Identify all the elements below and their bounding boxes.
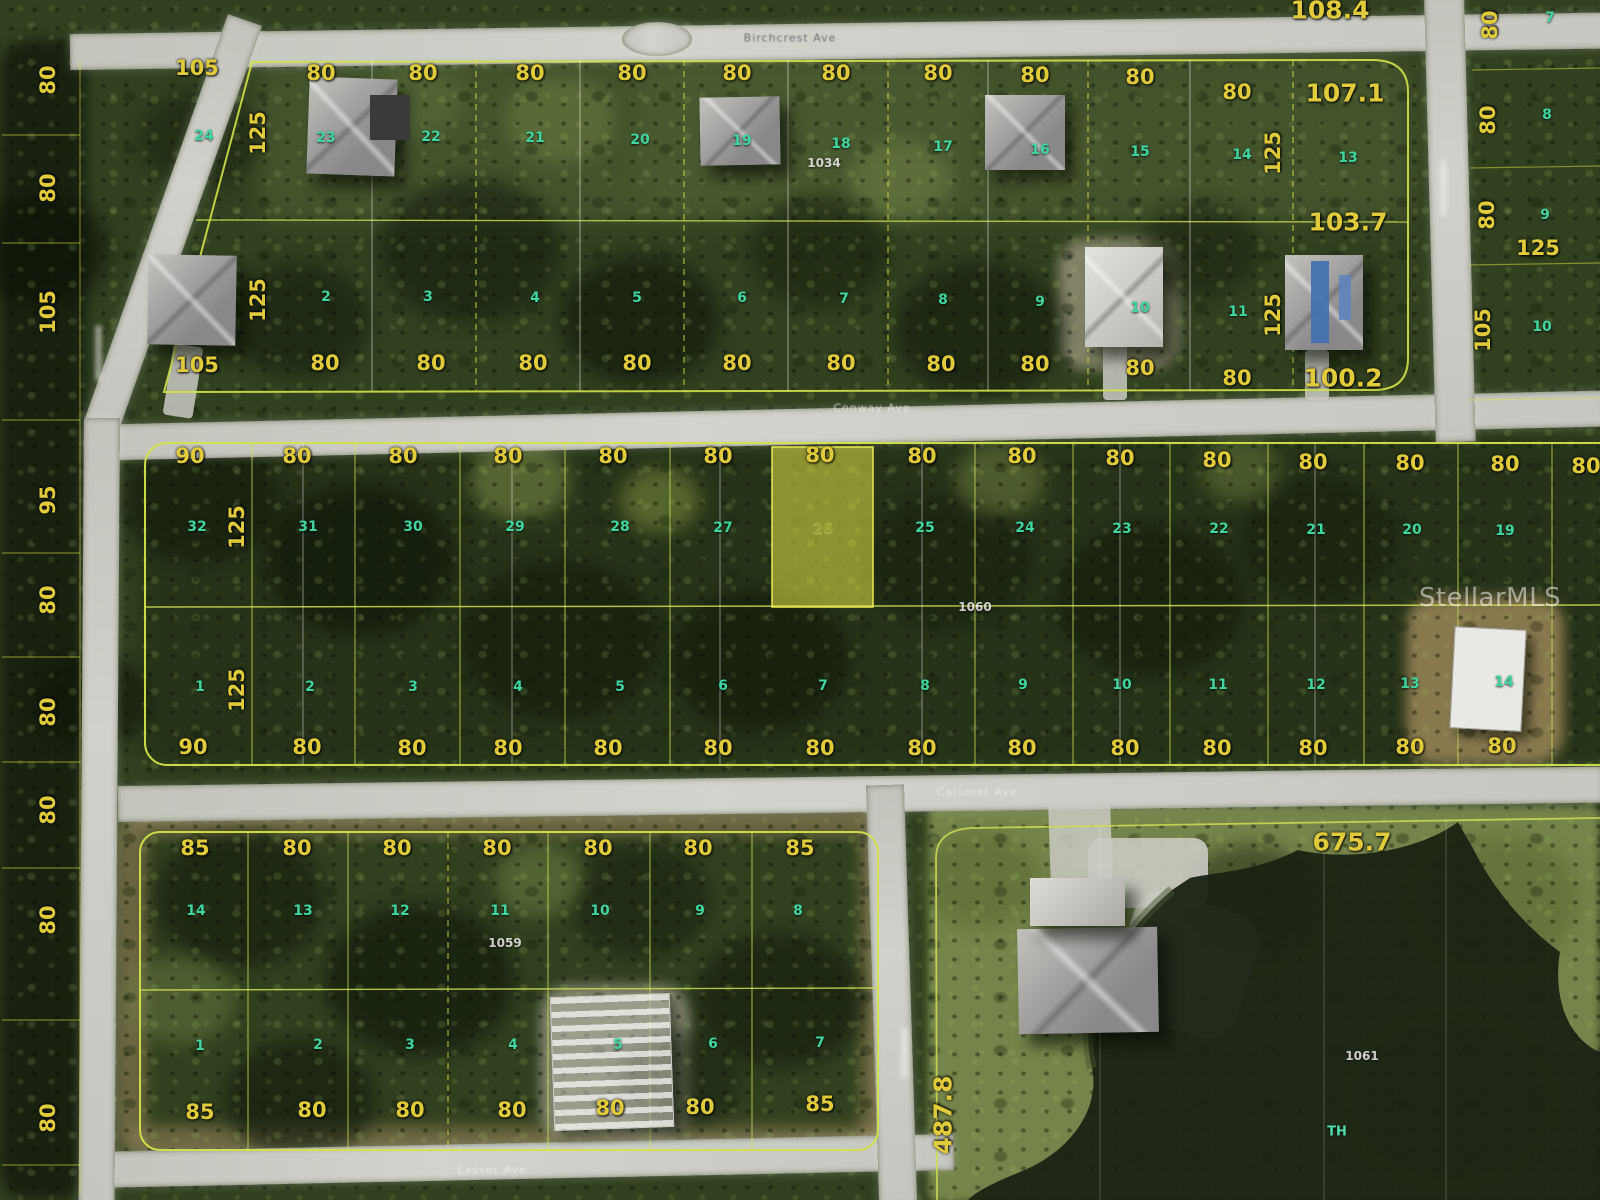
dimension-label: 80 [821,61,850,85]
dimension-label: 80 [583,836,612,860]
dimension-label: 125 [1516,236,1560,260]
lot-number-label: 22 [421,129,440,145]
dimension-label: 80 [598,444,627,468]
lot-number-label: 23 [1112,521,1131,537]
dimension-label: 90 [175,444,204,468]
house-blue-roof [1285,255,1363,350]
dimension-label: 125 [1261,293,1285,337]
lot-number-label: 5 [632,290,642,306]
house-west [147,254,237,346]
lot-number-label: 17 [933,139,952,155]
lot-number-label: 27 [713,520,732,536]
dimension-label: 80 [1395,451,1424,475]
lot-number-label: 16 [1030,142,1049,158]
lot-number-label: 14 [186,903,205,919]
lot-number-label: 10 [590,903,609,919]
dimension-label: 80 [408,61,437,85]
house-north-2 [699,96,780,165]
dimension-label: 80 [36,795,60,824]
lot-number-label: 10 [1130,300,1149,316]
dimension-label: 80 [416,351,445,375]
dimension-label: 80 [703,736,732,760]
dimension-label: 105 [36,290,60,334]
lot-number-label: 13 [1338,150,1357,166]
dimension-label: 80 [1298,736,1327,760]
house-north-3 [985,95,1065,170]
lot-number-label: 19 [732,133,751,149]
lot-number-label: 10 [1532,319,1551,335]
dimension-label: 80 [683,836,712,860]
dimension-label: 80 [36,585,60,614]
dimension-label: 80 [703,444,732,468]
dimension-label: 105 [175,56,219,80]
dimension-label: 125 [246,111,270,155]
blue-roof-panel [1311,261,1329,343]
dimension-label: 105 [175,353,219,377]
dimension-label: 80 [397,736,426,760]
lot-number-label: 32 [187,519,206,535]
dimension-label: 80 [907,736,936,760]
lot-number-label: 15 [1130,144,1149,160]
house-under-construction [1085,247,1163,347]
lot-number-label: 21 [1306,522,1325,538]
lot-number-label: 11 [490,903,509,919]
dimension-label: 80 [310,351,339,375]
dimension-label: 85 [180,836,209,860]
dimension-label: 80 [617,61,646,85]
dimension-label: 80 [1490,452,1519,476]
lot-number-label: 8 [1542,107,1552,123]
dimension-label: 487.8 [929,1075,958,1154]
lot-number-label: 13 [293,903,312,919]
street-name-west-blur [95,325,102,381]
dimension-label: 80 [1476,105,1500,134]
dimension-label: 80 [826,351,855,375]
dimension-label: 80 [923,61,952,85]
lot-number-label: 8 [793,903,803,919]
dimension-label: 80 [382,836,411,860]
dimension-label: 95 [36,485,60,514]
house-north-1-wing [370,95,410,140]
lot-number-label: 12 [1306,677,1325,693]
dimension-label: 80 [1125,356,1154,380]
dimension-label: 80 [595,1096,624,1120]
dimension-label: 80 [493,736,522,760]
dimension-label: 80 [395,1098,424,1122]
dimension-label: 80 [1298,450,1327,474]
dimension-label: 80 [493,444,522,468]
lot-number-label: 11 [1228,304,1247,320]
dimension-label: 80 [1202,448,1231,472]
subject-lot-number-label: 26 [813,519,834,537]
dimension-label: 125 [225,505,249,549]
dimension-label: 80 [1007,736,1036,760]
lot-number-label: 1 [195,679,205,695]
lot-number-label: 31 [298,519,317,535]
lot-number-label: 2 [305,679,315,695]
lot-number-label: 22 [1209,521,1228,537]
lot-number-label: 21 [525,130,544,146]
lot-number-label: 14 [1232,147,1251,163]
lot-number-label: 3 [405,1037,415,1053]
street-name-label: Calumet Ave [937,786,1018,799]
dimension-label: 80 [926,352,955,376]
dimension-label: 80 [622,351,651,375]
dimension-label: 80 [292,735,321,759]
lot-number-label: 8 [938,292,948,308]
lot-number-label: 2 [313,1037,323,1053]
dimension-label: 80 [1020,63,1049,87]
lot-number-label: 5 [613,1037,623,1053]
dimension-label: 80 [907,444,936,468]
block-number-label: 1034 [807,156,840,170]
dimension-label: 125 [1261,131,1285,175]
lot-number-label: 6 [718,678,728,694]
dimension-label: 125 [225,668,249,712]
dimension-label: 80 [515,61,544,85]
lot-number-label: 4 [513,679,523,695]
dimension-label: 80 [482,836,511,860]
lot-number-label: 20 [1402,522,1421,538]
dimension-label: 80 [1222,80,1251,104]
street-name-label: Conway Ave [833,402,910,415]
lot-number-label: 7 [818,678,828,694]
dimension-label: 85 [805,1092,834,1116]
dimension-label: 80 [1395,735,1424,759]
lot-number-label: 28 [610,519,629,535]
dimension-label: 125 [246,278,270,322]
lot-number-label: 23 [316,130,335,146]
dimension-label: 80 [805,736,834,760]
dimension-label: 80 [36,65,60,94]
lot-number-label: 18 [831,136,850,152]
dimension-label: 80 [497,1098,526,1122]
lot-number-label: 1 [195,1038,205,1054]
dimension-label: 108.4 [1290,0,1369,25]
dimension-label: 80 [1125,65,1154,89]
dimension-label: 107.1 [1305,79,1384,108]
dimension-label: 675.7 [1312,828,1391,857]
dimension-label: 80 [282,836,311,860]
block-number-label: 1060 [958,600,991,614]
aerial-parcel-map: StellarMLS 80801059580808080801051252410… [0,0,1600,1200]
lot-number-label: 5 [615,679,625,695]
dimension-label: 105 [1471,308,1495,352]
dimension-label: 80 [722,61,751,85]
lot-number-label: 7 [839,291,849,307]
utility-trailer [1449,626,1526,732]
blue-roof-panel-2 [1339,275,1351,320]
dimension-label: 80 [1020,352,1049,376]
lot-number-label: 9 [1035,294,1045,310]
lot-number-label: 9 [1018,677,1028,693]
pond [0,0,1600,1200]
stellar-mls-watermark: StellarMLS [1419,583,1561,613]
dimension-label: 80 [297,1098,326,1122]
dimension-label: 80 [1478,10,1502,39]
lot-number-label: 11 [1208,677,1227,693]
dimension-label: 80 [1202,736,1231,760]
dimension-label: 80 [306,61,335,85]
street-name-label: Birchcrest Ave [744,32,837,45]
lot-number-label: 3 [408,679,418,695]
dimension-label: 80 [36,173,60,202]
lot-number-label: 9 [695,903,705,919]
lot-number-label: 14 [1494,674,1513,690]
dimension-label: 80 [593,736,622,760]
street-name-east-blur [1440,160,1447,216]
house-southeast-main [1017,927,1159,1034]
dimension-label: 80 [805,443,834,467]
block-number-label: 1061 [1345,1049,1378,1063]
dimension-label: 80 [722,351,751,375]
dimension-label: 80 [1110,736,1139,760]
dimension-label: 80 [388,444,417,468]
lot-number-label: 4 [508,1037,518,1053]
lot-number-label: 6 [737,290,747,306]
lot-number-label: 6 [708,1036,718,1052]
lot-number-label: 4 [530,290,540,306]
dimension-label: 80 [518,351,547,375]
lot-number-label: 7 [1545,10,1555,26]
lot-number-label: 2 [321,289,331,305]
dimension-label: 85 [185,1100,214,1124]
lot-number-label: 10 [1112,677,1131,693]
dimension-label: 103.7 [1308,208,1387,237]
dimension-label: 100.2 [1303,364,1382,393]
dimension-label: 80 [1487,734,1516,758]
lot-number-label: 25 [915,520,934,536]
dimension-label: 85 [785,836,814,860]
lot-number-label: 12 [390,903,409,919]
lot-number-label: 29 [505,519,524,535]
lot-number-label: 24 [194,128,213,144]
dimension-label: 80 [1105,446,1134,470]
house-southeast-carport [1030,878,1125,926]
lot-number-label: 8 [920,678,930,694]
lot-number-label: 3 [423,289,433,305]
lot-number-label: 30 [403,519,422,535]
lot-number-label: 13 [1400,676,1419,692]
terrain-hint-label: TH [1327,1125,1347,1140]
street-name-mid-south-blur [901,1028,908,1078]
dimension-label: 80 [1475,200,1499,229]
lot-number-label: 24 [1015,520,1034,536]
dimension-label: 80 [36,697,60,726]
lot-number-label: 20 [630,132,649,148]
dimension-label: 80 [1007,444,1036,468]
dimension-label: 80 [685,1095,714,1119]
lot-number-label: 19 [1495,523,1514,539]
dimension-label: 80 [1571,454,1600,478]
dimension-label: 80 [36,905,60,934]
dimension-label: 80 [282,444,311,468]
block-number-label: 1059 [488,936,521,950]
street-name-label: Lasser Ave [457,1164,526,1177]
lot-number-label: 9 [1540,207,1550,223]
dimension-label: 80 [36,1103,60,1132]
lot-number-label: 7 [815,1035,825,1051]
dimension-label: 90 [178,735,207,759]
dimension-label: 80 [1222,366,1251,390]
